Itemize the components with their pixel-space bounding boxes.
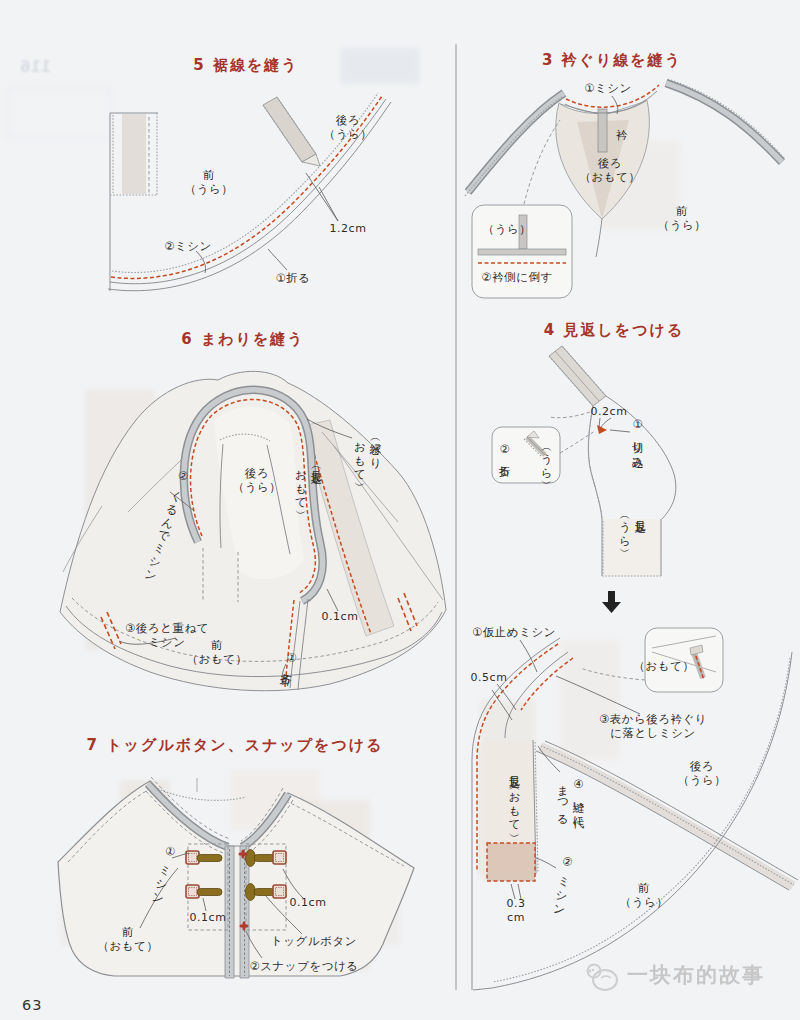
label-measure-1-2cm: 1.2cm [330,222,367,236]
label-step1-clip: ①切り込み [629,417,645,462]
step5-illustration [40,85,460,310]
label-back-ura: 後ろ （うら） [678,759,727,788]
label-step2-machine: ②ミシン [164,239,212,253]
label-inset-ura: （うら） [538,444,554,474]
label-facing-omote: （見返し おもて） [292,461,323,504]
step7-illustration [40,765,460,990]
step3-heading: 3 衿ぐり線を縫う [542,51,682,70]
label-back-ura: 後ろ （うら） [324,113,373,142]
ghost-patch [340,48,420,84]
label-facing-omote: 見返し（おもて） [506,767,522,828]
label-binding-omote: （縁どり おもて） [351,433,382,476]
label-toggle-button: トッグルボタン [271,934,357,948]
label-step3-stitch-in-ditch: ③表から後ろ衿ぐり に落としミシン [599,712,707,741]
label-measure-0-2cm: 0.2cm [591,405,628,419]
label-collar: 衿 [616,128,628,142]
label-measure-0-5cm: 0.5cm [471,671,508,685]
sewing-instruction-page: 116 5 裾線を縫う [0,0,800,1020]
label-step1-fold: ①折る [275,271,310,285]
label-step2-snap: ②スナップをつける [250,959,359,973]
down-arrow-icon [602,591,621,613]
upper-shoulder-strip [549,346,607,434]
label-step1-machine: ①ミシン [584,81,632,95]
label-measure-0-1cm-left: 0.1cm [190,911,227,925]
label-front-ura: 前 （うら） [620,881,669,910]
label-back-ura: 後ろ （うら） [233,466,282,495]
label-facing-ura: 見返し （うら） [616,512,647,542]
label-front-ura: 前 （うら） [185,168,234,197]
step4-heading: 4 見返しをつける [544,321,684,340]
label-measure-0-3cm: 0.3 cm [507,897,526,925]
watermark: 一块布的故事 [585,958,765,992]
label-front-omote: 前 （おもて） [187,638,248,667]
inset-pointer-dash [524,120,560,204]
label-step2-press: ②衿側に倒す [481,270,552,284]
label-front-omote: 前 （おもて） [98,925,159,954]
label-measure-0-1cm: 0.1cm [322,610,359,624]
upper-body [549,396,676,576]
ghost-text-116: 116 [20,58,51,76]
step7-heading: 7 トッグルボタン、スナップをつける [87,736,384,755]
back-strip [263,97,320,166]
front-piece [110,113,158,291]
label-front-ura: 前 （うら） [658,204,707,233]
label-baste-stitch: ①仮止めミシン [472,625,556,639]
label-inset-fold: ②折る [496,442,512,472]
page-number: 63 [22,997,42,1013]
label-inset-omote: （おもて） [634,659,695,673]
watermark-text: 一块布的故事 [627,961,765,989]
chick-logo-icon [585,958,621,992]
label-measure-0-1cm-right: 0.1cm [290,896,327,910]
label-step4-slipstitch: ④縫い代に まつる [554,777,585,822]
step6-heading: 6 まわりを縫う [181,330,304,349]
collar-tab [598,109,607,152]
label-inset-ura: （うら） [483,222,532,236]
label-back-omote: 後ろ （おもて） [580,156,641,185]
facing-end [487,843,535,881]
step5-heading: 5 裾線を縫う [193,56,298,75]
